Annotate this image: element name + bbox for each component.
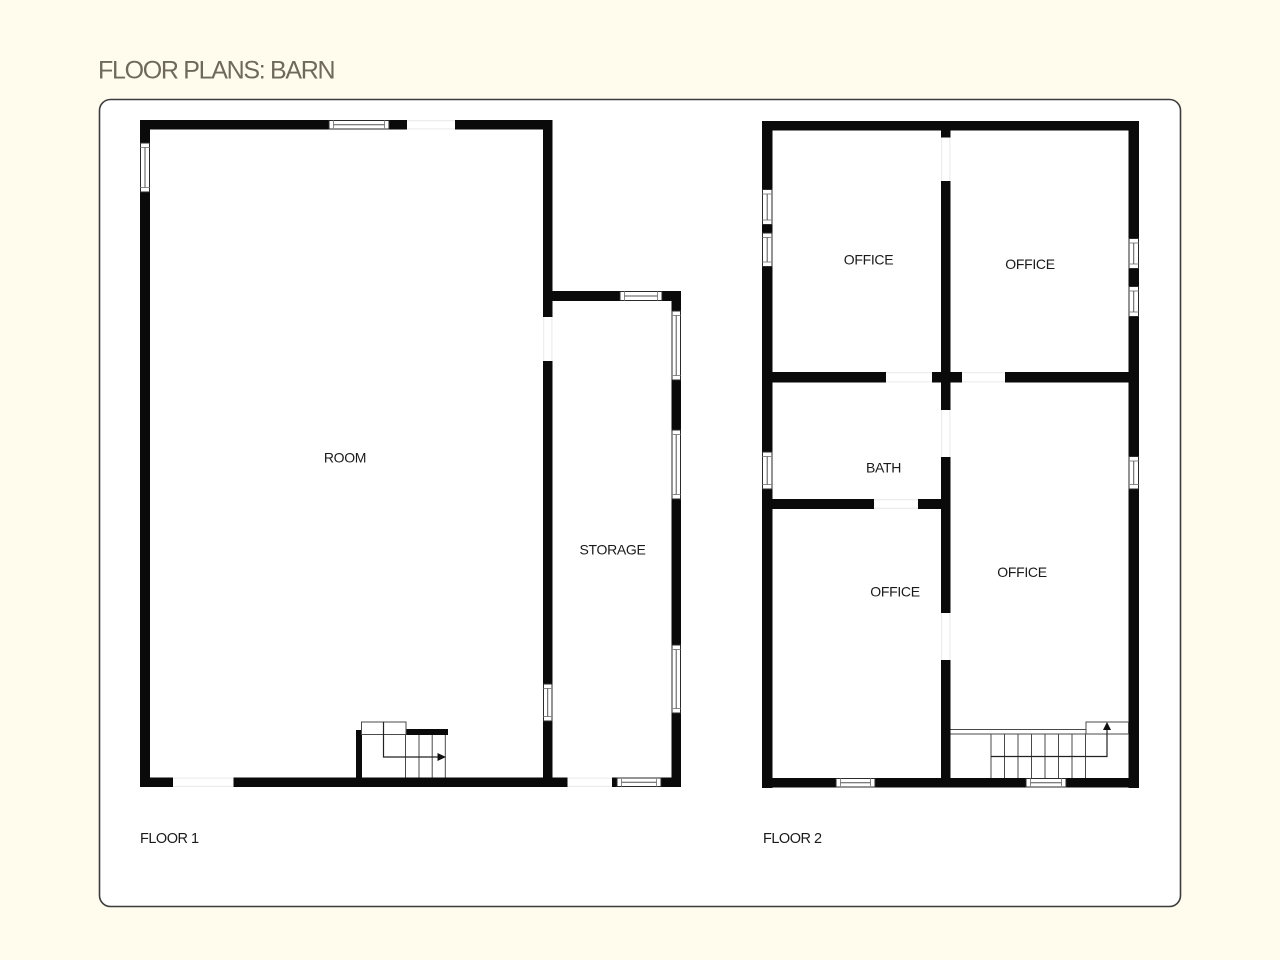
svg-text:FLOOR PLANS: BARN: FLOOR PLANS: BARN (98, 57, 335, 85)
svg-text:FLOOR 2: FLOOR 2 (763, 831, 822, 847)
svg-text:OFFICE: OFFICE (1005, 256, 1055, 272)
svg-text:OFFICE: OFFICE (844, 252, 894, 268)
svg-text:STORAGE: STORAGE (579, 542, 645, 558)
svg-text:FLOOR 1: FLOOR 1 (140, 831, 199, 847)
svg-text:BATH: BATH (866, 460, 901, 476)
svg-text:OFFICE: OFFICE (997, 564, 1047, 580)
svg-text:OFFICE: OFFICE (870, 584, 920, 600)
svg-text:ROOM: ROOM (324, 450, 366, 466)
